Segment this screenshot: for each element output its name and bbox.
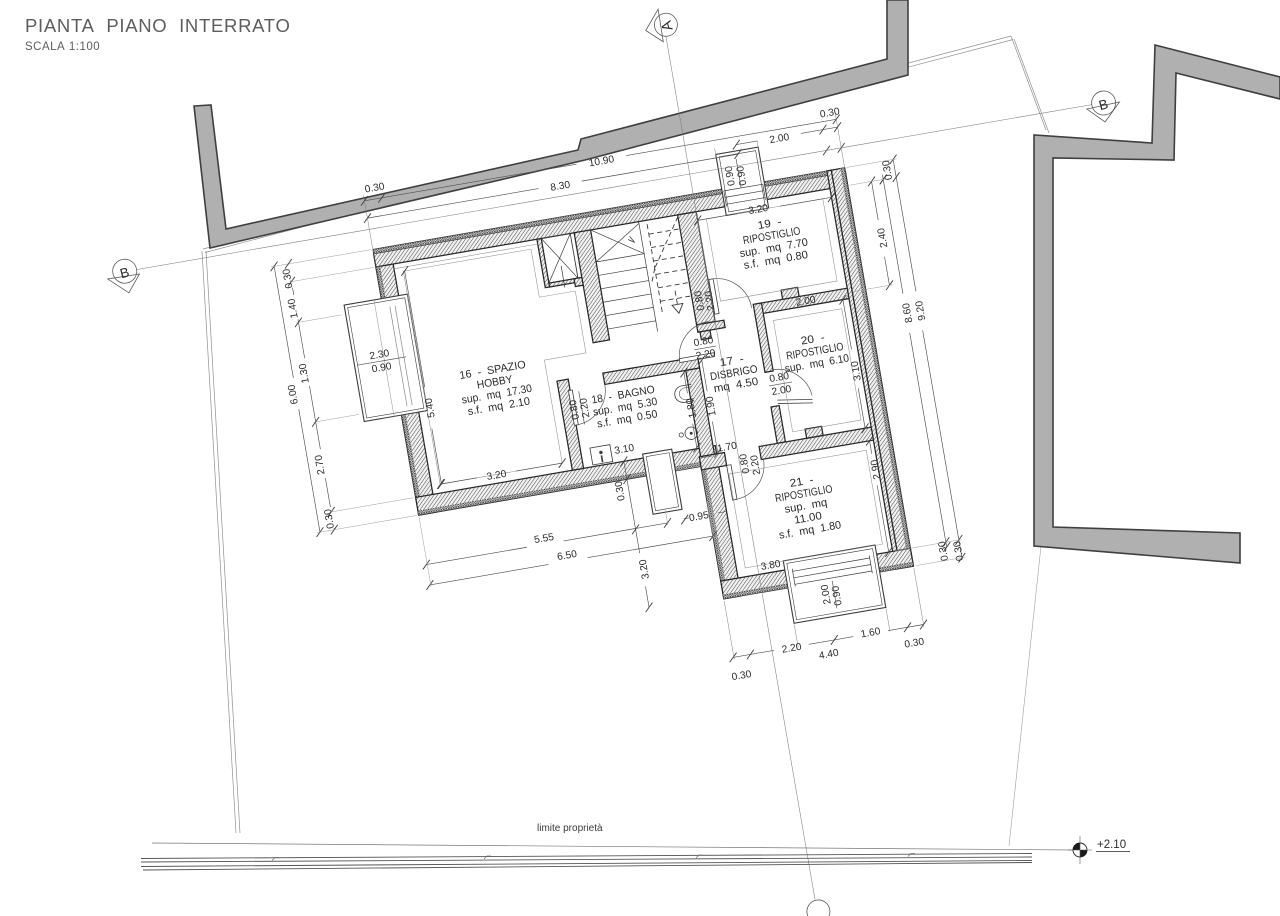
svg-text:PIANTA PIANO INTERRATO: PIANTA PIANO INTERRATO [25, 15, 291, 36]
svg-text:SCALA 1:100: SCALA 1:100 [25, 41, 100, 53]
svg-text:limite proprietà: limite proprietà [537, 823, 603, 834]
svg-text:+2.10: +2.10 [1097, 839, 1126, 851]
